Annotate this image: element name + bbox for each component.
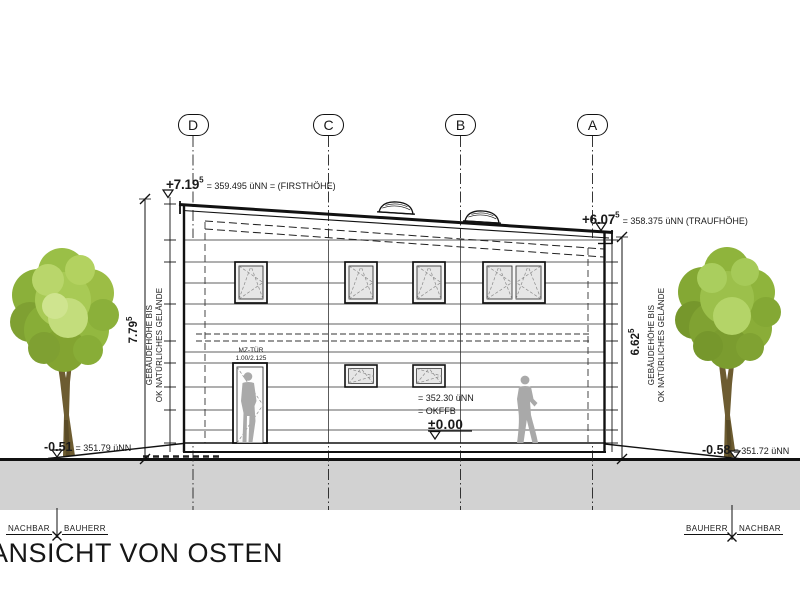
window — [235, 262, 267, 303]
window-small — [413, 365, 445, 387]
window — [345, 262, 377, 303]
dimension-label-right: GEBÄUDEHÖHE BIS OK NATÜRLICHES GELÄNDE — [647, 257, 669, 433]
window-double — [483, 262, 545, 303]
level-annotation-traufhoehe: +6.075= 358.375 üNN (TRAUFHÖHE) — [582, 211, 748, 229]
boundary-markers — [53, 505, 737, 542]
dimension-value-left: 7.795 — [126, 300, 142, 360]
site-label-nachbar-right: NACHBAR — [737, 524, 783, 535]
door-label-type: MZ-TÜR — [225, 347, 277, 355]
level-note: = 351.72 üNN — [734, 446, 790, 456]
level-note: = 351.79 üNN — [76, 443, 132, 453]
level-value: +7.19 — [166, 177, 199, 192]
level-value: +6.07 — [582, 212, 615, 227]
skylight-dome-1 — [377, 201, 416, 214]
level-note: = 359.495 üNN = (FIRSTHÖHE) — [207, 181, 336, 191]
level-annotation-ground-right: -0.58= 351.72 üNN — [702, 441, 789, 459]
level-annotation-ffb: = 352.30 üNN = OKFFB ±0.00 — [418, 392, 474, 431]
level-value: -0.58 — [702, 443, 731, 457]
door-label-size: 1.00/2.125 — [225, 355, 277, 363]
site-label-nachbar-left: NACHBAR — [6, 524, 52, 535]
window-small — [345, 365, 377, 387]
level-annotation-firsthoehe: +7.195= 359.495 üNN = (FIRSTHÖHE) — [166, 176, 336, 194]
elevation-drawing — [0, 0, 800, 600]
site-label-bauherr-left: BAUHERR — [62, 524, 108, 535]
axis-bubble-A: A — [577, 114, 608, 136]
ffb-line-1: = 352.30 üNN — [418, 392, 474, 405]
elevation-sheet: +7.195= 359.495 üNN = (FIRSTHÖHE) +6.075… — [0, 0, 800, 600]
site-label-bauherr-right: BAUHERR — [684, 524, 730, 535]
level-sup: 5 — [615, 211, 619, 220]
level-note: = 358.375 üNN (TRAUFHÖHE) — [623, 216, 748, 226]
door-label: MZ-TÜR 1.00/2.125 — [225, 347, 277, 362]
page-title: ANSICHT VON OSTEN — [0, 538, 283, 569]
skylight-dome-2 — [463, 210, 502, 223]
level-sup: 5 — [199, 176, 203, 185]
axis-bubble-D: D — [178, 114, 209, 136]
dimension-label-left: GEBÄUDEHÖHE BIS OK NATÜRLICHES GELÄNDE — [145, 257, 167, 433]
tree-right — [675, 247, 781, 457]
tree-left — [10, 248, 119, 456]
window — [413, 262, 445, 303]
ffb-line-3: ±0.00 — [418, 418, 474, 431]
level-annotation-ground-left: -0.51= 351.79 üNN — [44, 438, 131, 456]
dimension-value-right: 6.625 — [628, 312, 644, 372]
axis-bubble-C: C — [313, 114, 344, 136]
axis-bubble-B: B — [445, 114, 476, 136]
level-value: -0.51 — [44, 440, 73, 454]
